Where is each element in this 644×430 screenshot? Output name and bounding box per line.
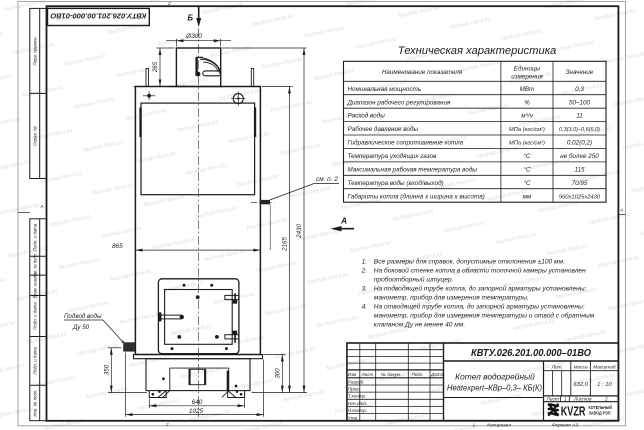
svg-text:А: А — [619, 208, 623, 213]
svg-text:На отводящей трубе котла, до з: На отводящей трубе котла, до запорной ар… — [374, 303, 585, 311]
svg-text:Максимальная рабочая температу: Максимальная рабочая температура воды — [348, 165, 478, 173]
svg-text:2: 2 — [604, 396, 608, 402]
svg-text:А: А — [40, 204, 44, 209]
svg-text:KVZR: KVZR — [561, 404, 586, 418]
svg-text:измерения: измерения — [511, 74, 543, 81]
svg-text:2: 2 — [167, 1, 171, 6]
svg-text:Ø300: Ø300 — [185, 33, 202, 40]
svg-text:На подводящей трубе котла, до: На подводящей трубе котла, до запорной а… — [374, 285, 587, 293]
svg-text:%: % — [524, 99, 530, 106]
svg-text:Лист: Лист — [546, 396, 559, 402]
svg-text:Наименование показателя: Наименование показателя — [382, 69, 463, 76]
svg-text:пробоотборный штуцер.: пробоотборный штуцер. — [374, 276, 454, 284]
svg-text:865: 865 — [112, 243, 123, 250]
svg-text:КВТУ.026.201.00.000-01ВО: КВТУ.026.201.00.000-01ВО — [50, 12, 146, 21]
svg-text:Инв. № подл.: Инв. № подл. — [32, 389, 37, 416]
svg-text:Диапазон рабочего регулировани: Диапазон рабочего регулирования — [347, 98, 451, 106]
svg-text:Т.контр.: Т.контр. — [348, 394, 367, 399]
svg-text:манометр, прибор для измерения: манометр, прибор для измерения температу… — [374, 312, 595, 320]
svg-text:960х1025х2430: 960х1025х2430 — [559, 194, 601, 200]
svg-text:№ докум.: № докум. — [381, 372, 401, 377]
svg-text:3.: 3. — [362, 286, 368, 293]
svg-text:Масса: Масса — [574, 364, 589, 370]
svg-text:1 : 10: 1 : 10 — [597, 382, 612, 388]
svg-text:Дата: Дата — [430, 372, 444, 377]
svg-text:Подп. и дата: Подп. и дата — [32, 223, 37, 251]
svg-text:0,3(3,0)–0,6(6,0): 0,3(3,0)–0,6(6,0) — [559, 127, 600, 133]
svg-text:1.: 1. — [362, 259, 368, 266]
svg-text:Подп.: Подп. — [412, 372, 424, 377]
svg-text:0,02(0,2): 0,02(0,2) — [567, 140, 592, 147]
svg-text:640: 640 — [192, 399, 203, 406]
svg-text:клапаном Ду не менее 40 мм.: клапаном Ду не менее 40 мм. — [374, 322, 466, 329]
svg-text:300: 300 — [274, 368, 281, 379]
svg-text:Значение: Значение — [566, 69, 594, 76]
svg-text:Габариты котла (длинна х ширин: Габариты котла (длинна х ширина х высота… — [348, 192, 485, 200]
svg-text:Гидравлическое сопротивление к: Гидравлическое сопротивление котла — [348, 139, 464, 147]
svg-text:Температура уходящих газов: Температура уходящих газов — [348, 152, 437, 160]
svg-text:ЗАВОД РЭП: ЗАВОД РЭП — [589, 411, 611, 416]
svg-text:1: 1 — [473, 422, 476, 427]
svg-text:2165: 2165 — [282, 237, 289, 252]
svg-text:МПа (кгс/см²): МПа (кгс/см²) — [509, 127, 545, 133]
svg-text:м³/ч: м³/ч — [521, 113, 533, 120]
svg-text:°С: °С — [523, 179, 531, 187]
svg-text:Рабочее давление воды: Рабочее давление воды — [348, 125, 419, 133]
svg-text:632,0: 632,0 — [573, 382, 588, 388]
svg-text:Котел водогрейный: Котел водогрейный — [455, 372, 535, 382]
svg-text:°С: °С — [523, 165, 531, 173]
svg-text:Пров.: Пров. — [348, 387, 360, 392]
svg-text:265: 265 — [152, 61, 159, 73]
svg-text:Б: Б — [188, 14, 194, 23]
svg-text:1025: 1025 — [189, 408, 204, 415]
svg-text:МВт: МВт — [520, 86, 535, 93]
svg-text:На боковой стенке котла в обла: На боковой стенке котла в области топочн… — [374, 267, 586, 275]
svg-text:0,3: 0,3 — [575, 86, 584, 93]
svg-text:Подп. и дата: Подп. и дата — [32, 347, 37, 375]
svg-text:Подвод воды: Подвод воды — [64, 313, 102, 320]
svg-text:МПа (кгс/см²): МПа (кгс/см²) — [509, 141, 545, 147]
svg-text:4.: 4. — [362, 304, 368, 311]
svg-text:Формат А3: Формат А3 — [552, 422, 579, 428]
svg-text:Расход воды: Расход воды — [348, 112, 386, 120]
svg-text:Н.контр.: Н.контр. — [348, 408, 367, 413]
svg-text:Справ. №: Справ. № — [32, 126, 37, 146]
svg-text:А: А — [340, 216, 347, 226]
svg-text:Нач.отд.: Нач.отд. — [348, 401, 367, 406]
svg-text:Утв.: Утв. — [348, 415, 358, 420]
svg-text:Лит.: Лит. — [551, 364, 563, 370]
svg-text:Масштаб: Масштаб — [593, 364, 616, 370]
svg-text:Изм: Изм — [348, 372, 357, 377]
svg-text:2430: 2430 — [296, 224, 303, 239]
svg-text:Разраб.: Разраб. — [348, 379, 365, 384]
svg-text:2: 2 — [165, 422, 169, 427]
svg-text:Ду 50: Ду 50 — [72, 324, 90, 331]
svg-text:Лист: Лист — [361, 372, 374, 377]
svg-text:Перв. примен.: Перв. примен. — [32, 36, 37, 65]
svg-text:Копировал: Копировал — [487, 422, 511, 428]
svg-text:350: 350 — [103, 364, 110, 375]
svg-text:1: 1 — [564, 396, 567, 402]
svg-text:мм: мм — [523, 193, 532, 200]
svg-text:КВТУ.026.201.00.000–01ВО: КВТУ.026.201.00.000–01ВО — [471, 348, 591, 359]
svg-text:Все размеры для справок, допус: Все размеры для справок, допустимые откл… — [374, 258, 565, 266]
svg-text:70/95: 70/95 — [572, 180, 588, 187]
svg-text:Температура воды (вход/выход): Температура воды (вход/выход) — [348, 179, 444, 187]
svg-text:11: 11 — [576, 113, 583, 120]
svg-text:см. п. 2: см. п. 2 — [316, 176, 338, 183]
svg-text:Номинальная мощность: Номинальная мощность — [348, 86, 422, 93]
svg-text:Единицы: Единицы — [514, 65, 541, 73]
svg-text:2.: 2. — [361, 268, 368, 275]
svg-text:°С: °С — [523, 152, 531, 160]
svg-text:50–100: 50–100 — [569, 99, 591, 106]
svg-text:115: 115 — [574, 166, 585, 173]
svg-text:Листов: Листов — [573, 396, 592, 402]
svg-text:Взам. инв. №: Взам. инв. № — [32, 272, 37, 298]
svg-text:манометр, прибор для измерения: манометр, прибор для измерения температу… — [374, 294, 529, 302]
svg-text:Подп. и дата: Подп. и дата — [32, 302, 37, 330]
svg-text:КОТЕЛЬНЫЙ: КОТЕЛЬНЫЙ — [589, 405, 613, 410]
svg-text:Heatexpert–КВр–0,3– КБ(К): Heatexpert–КВр–0,3– КБ(К) — [447, 383, 542, 393]
svg-text:Техническая характеристика: Техническая характеристика — [398, 45, 556, 57]
svg-text:не более 250: не более 250 — [560, 152, 599, 160]
